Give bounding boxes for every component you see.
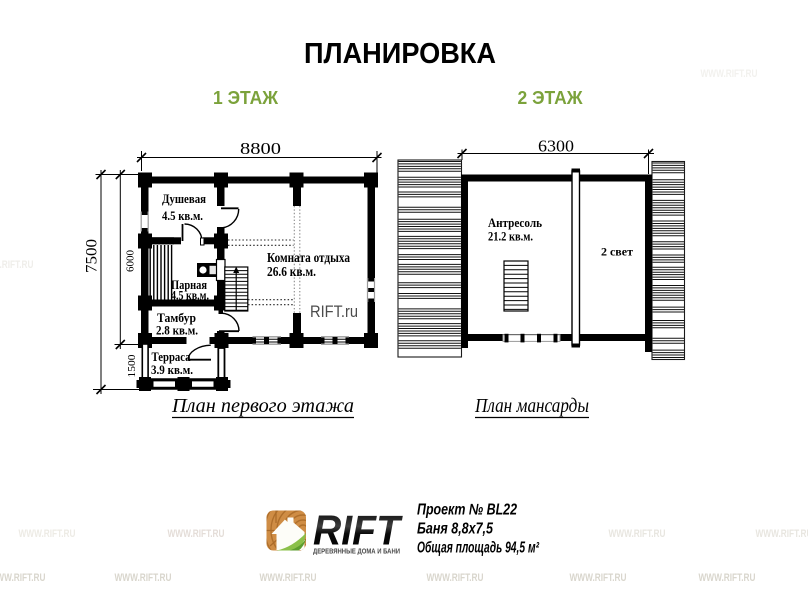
svg-text:WWW.RIFT.RU: WWW.RIFT.RU bbox=[168, 528, 225, 540]
svg-text:6300: 6300 bbox=[538, 137, 574, 156]
svg-text:2.8 кв.м.: 2.8 кв.м. bbox=[156, 324, 198, 338]
svg-text:WWW.RIFT.RU: WWW.RIFT.RU bbox=[0, 259, 34, 271]
svg-text:Душевая: Душевая bbox=[162, 191, 206, 206]
svg-text:RIFT.ru: RIFT.ru bbox=[310, 302, 358, 321]
svg-text:1500: 1500 bbox=[126, 354, 138, 378]
svg-text:ДЕРЕВЯННЫЕ ДОМА И БАНИ: ДЕРЕВЯННЫЕ ДОМА И БАНИ bbox=[313, 547, 400, 556]
svg-text:WWW.RIFT.RU: WWW.RIFT.RU bbox=[701, 68, 758, 80]
svg-text:План мансарды: План мансарды bbox=[474, 395, 589, 417]
svg-text:Антресоль: Антресоль bbox=[488, 216, 542, 230]
svg-text:WWW.RIFT.RU: WWW.RIFT.RU bbox=[260, 572, 317, 584]
svg-text:8800: 8800 bbox=[240, 139, 281, 158]
svg-text:WWW.RIFT.RU: WWW.RIFT.RU bbox=[115, 572, 172, 584]
svg-text:21.2 кв.м.: 21.2 кв.м. bbox=[488, 230, 533, 244]
svg-text:2 ЭТАЖ: 2 ЭТАЖ bbox=[518, 88, 584, 108]
svg-text:ПЛАНИРОВКА: ПЛАНИРОВКА bbox=[304, 38, 496, 70]
svg-text:26.6 кв.м.: 26.6 кв.м. bbox=[267, 264, 316, 279]
svg-text:Общая площадь 94,5 м²: Общая площадь 94,5 м² bbox=[417, 540, 540, 557]
svg-text:WWW.RIFT.RU: WWW.RIFT.RU bbox=[756, 528, 808, 540]
svg-text:3.9 кв.м.: 3.9 кв.м. bbox=[151, 362, 193, 377]
svg-text:6000: 6000 bbox=[124, 250, 136, 273]
svg-text:2 свет: 2 свет bbox=[601, 247, 633, 259]
svg-text:WWW.RIFT.RU: WWW.RIFT.RU bbox=[427, 572, 484, 584]
svg-text:WWW.RIFT.RU: WWW.RIFT.RU bbox=[699, 572, 756, 584]
svg-text:Баня 8,8х7,5: Баня 8,8х7,5 bbox=[417, 521, 493, 538]
svg-text:WWW.RIFT.RU: WWW.RIFT.RU bbox=[609, 528, 666, 540]
svg-text:WWW.RIFT.RU: WWW.RIFT.RU bbox=[19, 528, 76, 540]
svg-text:4.5 кв.м.: 4.5 кв.м. bbox=[171, 289, 209, 303]
svg-text:Проект № BL22: Проект № BL22 bbox=[417, 502, 517, 519]
svg-text:WWW.RIFT.RU: WWW.RIFT.RU bbox=[0, 572, 46, 584]
svg-text:4.5 кв.м.: 4.5 кв.м. bbox=[162, 208, 203, 223]
svg-text:Комната отдыха: Комната отдыха bbox=[267, 250, 350, 265]
svg-text:План первого этажа: План первого этажа bbox=[171, 395, 354, 417]
svg-text:7500: 7500 bbox=[84, 239, 101, 273]
svg-text:1 ЭТАЖ: 1 ЭТАЖ bbox=[213, 88, 279, 108]
svg-text:WWW.RIFT.RU: WWW.RIFT.RU bbox=[570, 572, 627, 584]
